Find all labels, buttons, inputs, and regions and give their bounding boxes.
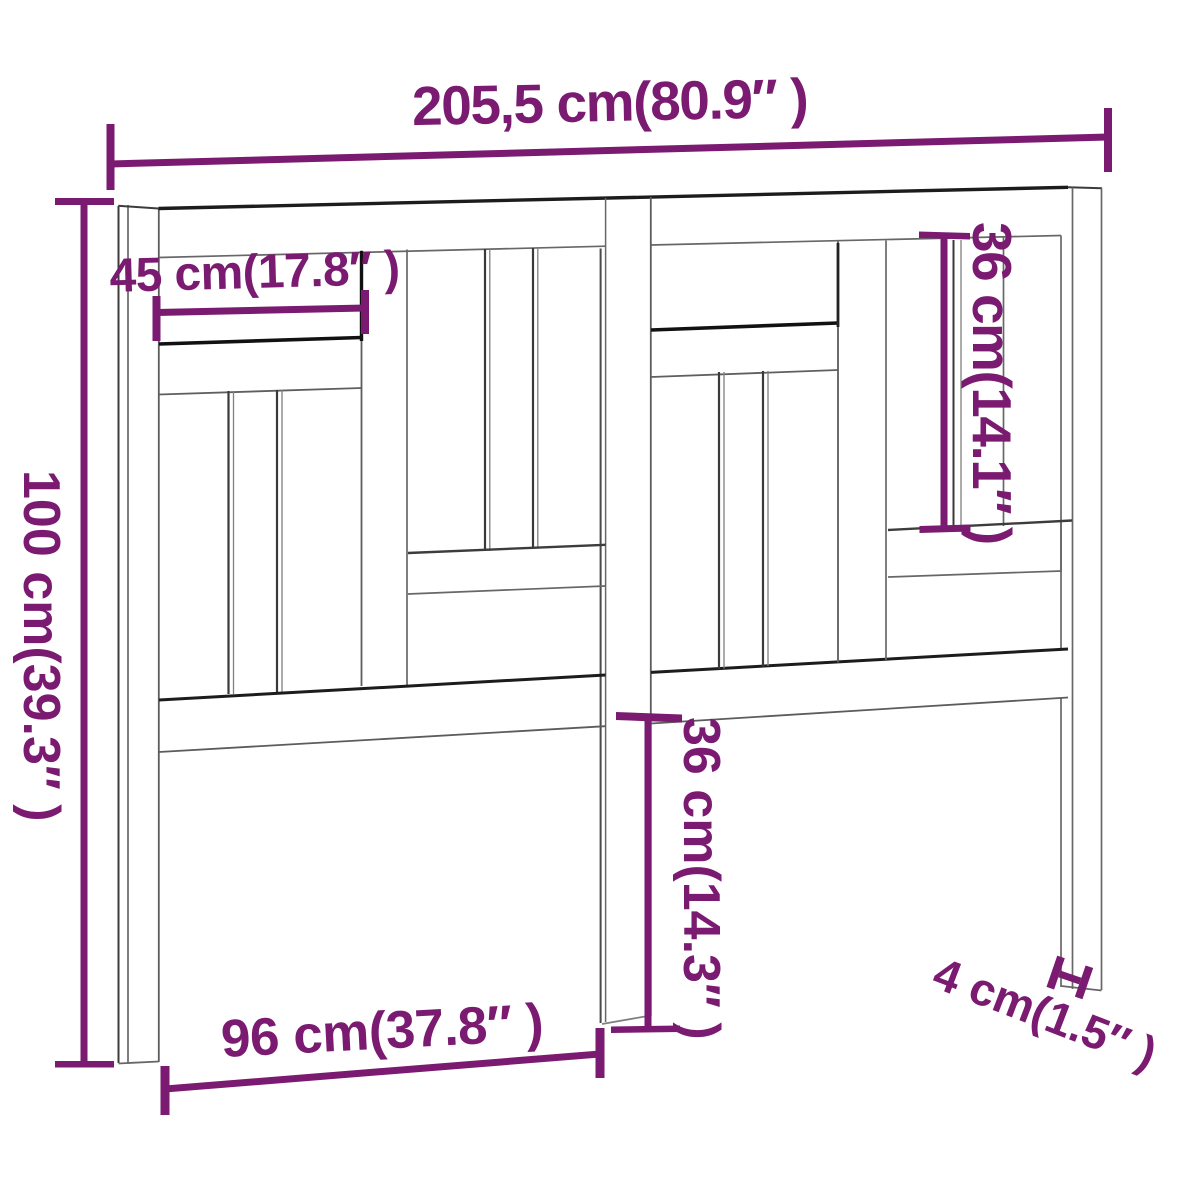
svg-text:45 cm(17.8″ ): 45 cm(17.8″ ) xyxy=(109,242,400,303)
svg-text:36 cm(14.3″ ): 36 cm(14.3″ ) xyxy=(672,717,730,1040)
svg-text:36 cm(14.1″ ): 36 cm(14.1″ ) xyxy=(961,222,1023,544)
svg-text:205,5 cm(80.9″ ): 205,5 cm(80.9″ ) xyxy=(411,67,808,137)
svg-text:100 cm(39.3″ ): 100 cm(39.3″ ) xyxy=(12,470,70,822)
